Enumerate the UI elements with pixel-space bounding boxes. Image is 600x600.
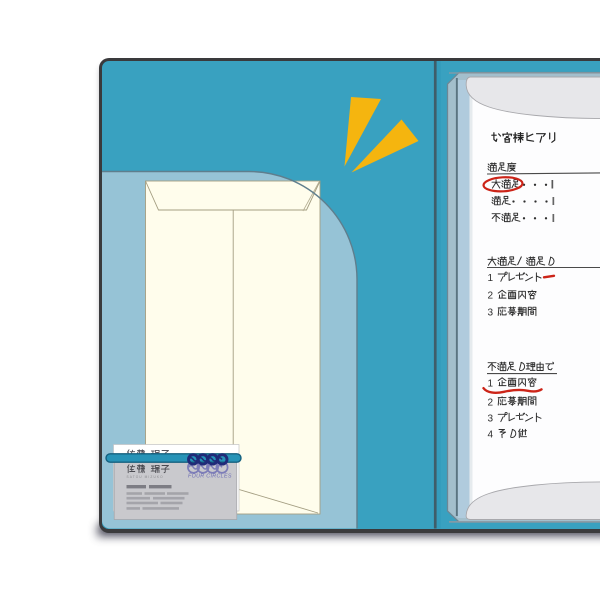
- svg-text:3: 3: [488, 414, 494, 425]
- svg-text:FOUR CIRCLES: FOUR CIRCLES: [188, 474, 232, 480]
- svg-text:3: 3: [488, 308, 494, 319]
- svg-text:SATOU MIZUKO: SATOU MIZUKO: [127, 475, 164, 479]
- svg-text:1: 1: [488, 378, 494, 389]
- svg-text:2: 2: [488, 291, 494, 302]
- svg-text:2: 2: [488, 397, 494, 408]
- svg-text:1: 1: [488, 273, 494, 284]
- svg-text:4: 4: [488, 430, 494, 441]
